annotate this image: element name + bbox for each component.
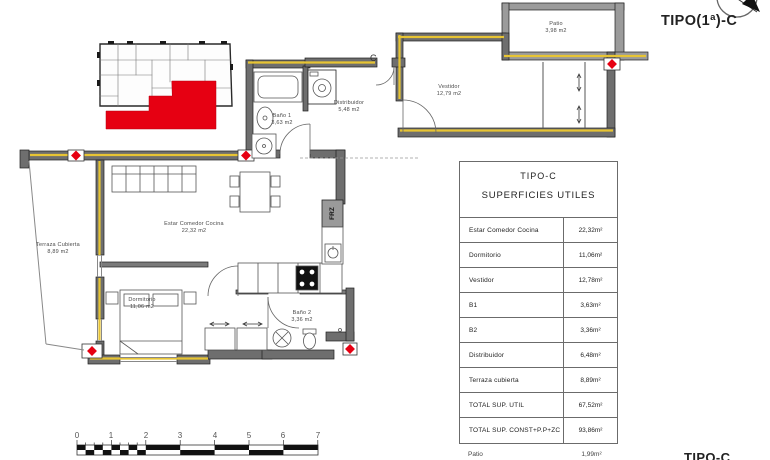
scale-tick-label: 2 — [139, 431, 153, 440]
vestidor-closet — [543, 62, 585, 128]
room-label-dormitorio: Dormitorio11,06 m2 — [116, 297, 168, 311]
drain — [339, 329, 342, 332]
room-label-bano1: Baño 13,63 m2 — [262, 113, 302, 127]
table-row: TOTAL SUP. CONST+P.P+ZC 93,86m² — [460, 418, 617, 443]
closet-direction-arrow — [577, 74, 581, 123]
scale-tick-label: 7 — [311, 431, 325, 440]
table-row: B1 3,63m² — [460, 293, 617, 318]
floorplan-sheet: TIPO(1ª)-C Patio3,98 m2 Vestidor12,79 m2… — [0, 0, 770, 460]
section-marker: C — [370, 53, 377, 63]
key-plan — [97, 41, 233, 129]
room-label-distribuidor: Distribuidor5,48 m2 — [323, 100, 375, 114]
scale-tick-label: 5 — [242, 431, 256, 440]
closet — [205, 322, 267, 350]
room-label-bano2: Baño 23,36 m2 — [284, 310, 320, 324]
table-title: TIPO-C — [460, 171, 617, 181]
cooktop — [296, 266, 318, 290]
red-column-marker — [82, 344, 102, 358]
footer-type-label: TIPO-C — [684, 450, 730, 460]
table-row: Distribuidor 6,48m² — [460, 343, 617, 368]
red-column-marker — [68, 150, 84, 161]
room-label-vestidor: Vestidor12,79 m2 — [423, 84, 475, 98]
sofa — [112, 166, 196, 192]
room-label-patio: Patio3,98 m2 — [535, 21, 577, 35]
floorplan-drawing — [0, 0, 770, 460]
washing-machine — [308, 70, 336, 104]
room-label-estar: Estar Comedor Cocina22,32 m2 — [148, 221, 240, 235]
red-column-marker — [604, 58, 620, 70]
room-label-terraza: Terraza Cubierta8,89 m2 — [34, 242, 82, 256]
scale-tick-label: 1 — [104, 431, 118, 440]
table-row: Terraza cubierta 8,89m² — [460, 368, 617, 393]
fridge-label: FRZ — [326, 198, 339, 229]
areas-table: TIPO-C SUPERFICIES UTILES Estar Comedor … — [459, 161, 618, 444]
areas-table-header: TIPO-C SUPERFICIES UTILES — [460, 162, 617, 218]
bathtub — [254, 72, 302, 102]
table-row: B2 3,36m² — [460, 318, 617, 343]
kitchen-sink — [322, 227, 343, 264]
table-row: Estar Comedor Cocina 22,32m² — [460, 218, 617, 243]
table-subtitle: SUPERFICIES UTILES — [460, 190, 617, 201]
table-row: TOTAL SUP. UTIL 67,52m² — [460, 393, 617, 418]
table-row: Dormitorio 11,06m² — [460, 243, 617, 268]
scale-tick-label: 0 — [70, 431, 84, 440]
closet-direction-arrow — [210, 322, 262, 326]
red-column-marker — [343, 343, 357, 355]
scale-tick-label: 3 — [173, 431, 187, 440]
table-row: Vestidor 12,78m² — [460, 268, 617, 293]
shower-tray — [273, 329, 291, 347]
table-extra-row: Patio 1,99m² — [459, 451, 618, 458]
scale-tick-label: 6 — [276, 431, 290, 440]
scale-bar — [77, 440, 318, 455]
scale-tick-label: 4 — [208, 431, 222, 440]
kitchen-counter — [238, 263, 342, 293]
shower — [252, 134, 276, 158]
dining-table — [230, 172, 280, 212]
toilet — [303, 329, 316, 349]
page-title: TIPO(1ª)-C — [661, 13, 761, 29]
